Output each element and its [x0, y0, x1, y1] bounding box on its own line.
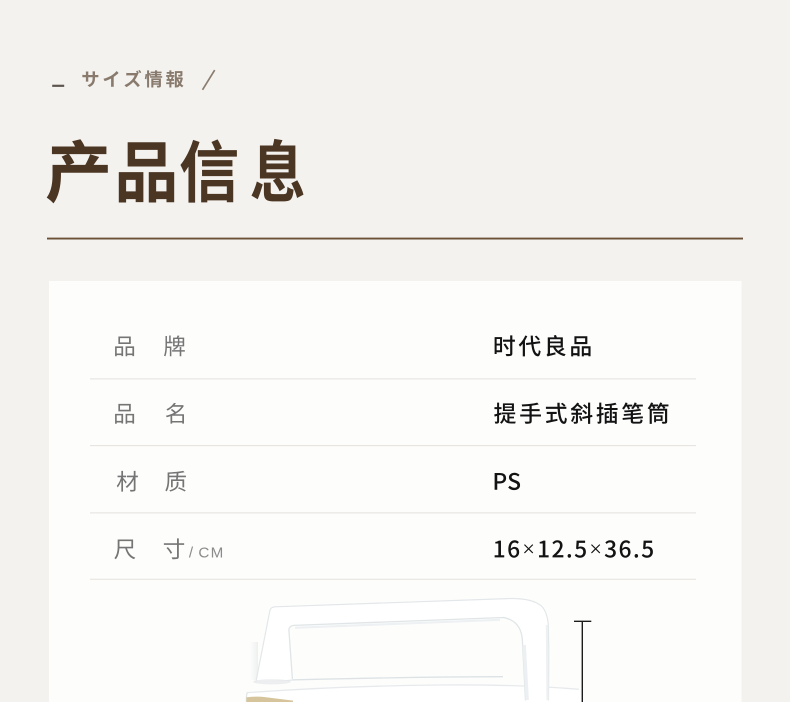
- svg-text:CM: CM: [198, 544, 224, 561]
